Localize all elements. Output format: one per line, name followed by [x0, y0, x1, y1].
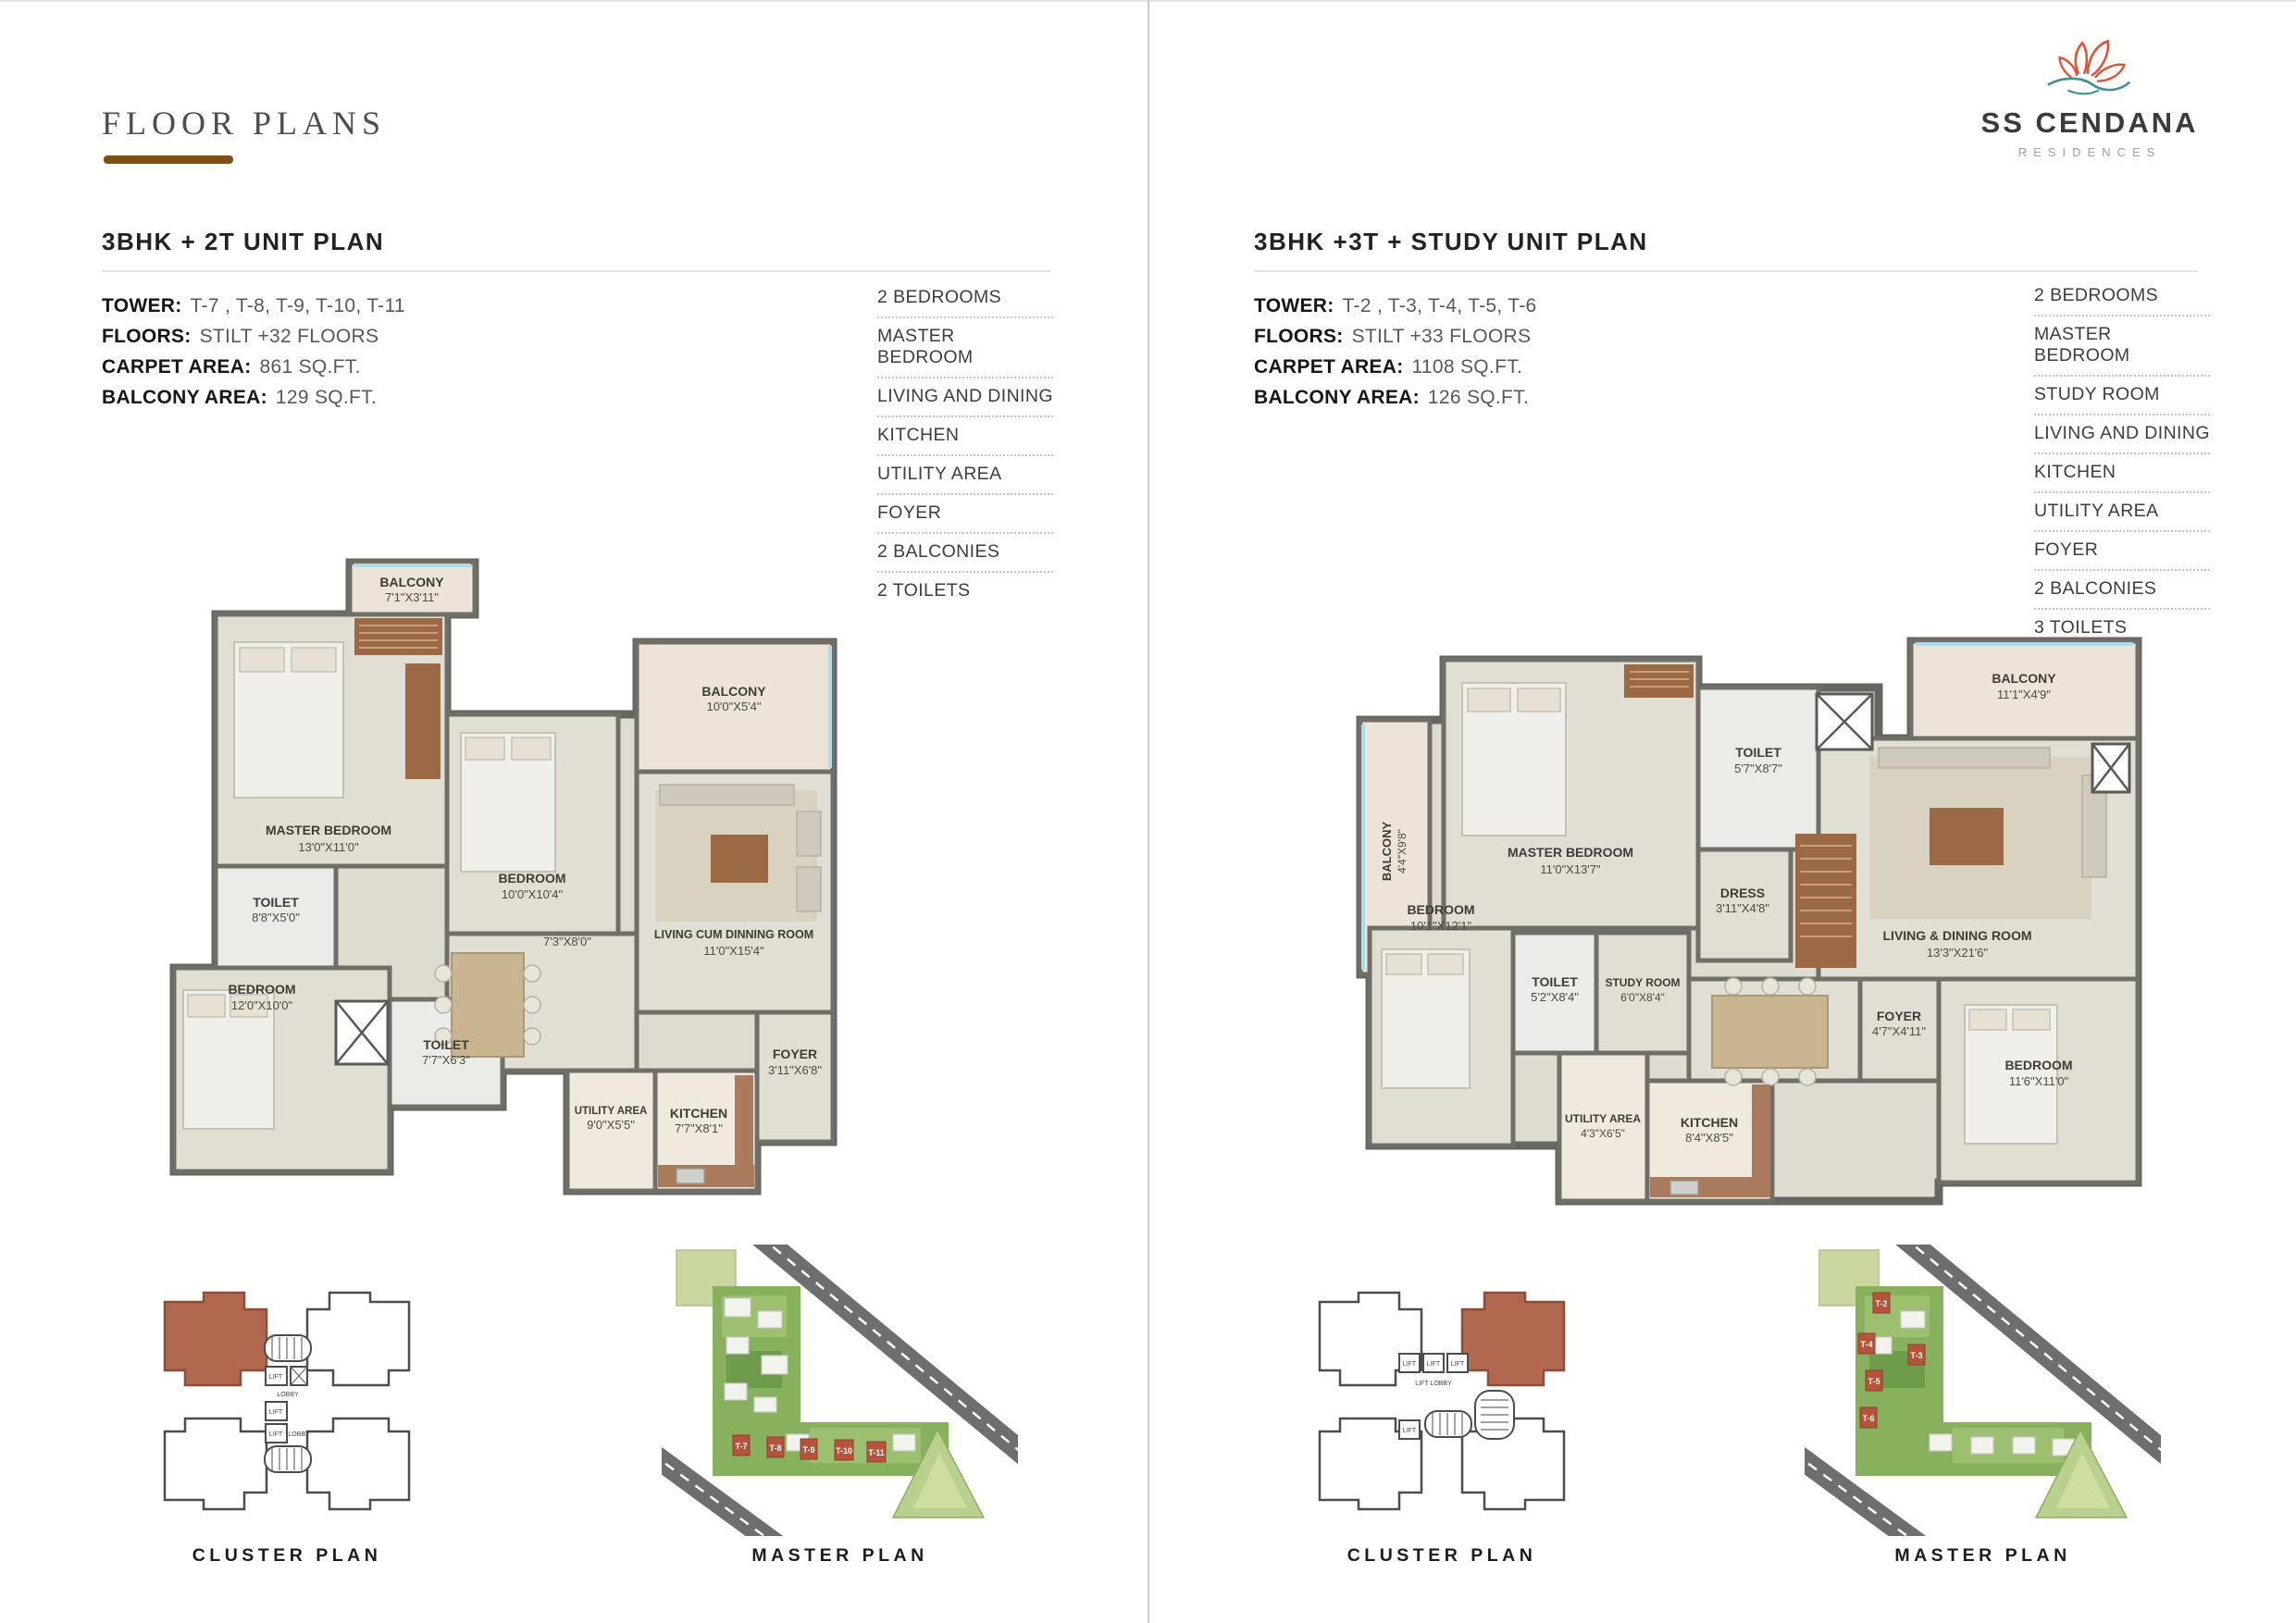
spec-row-balcony-area: BALCONY AREA:126 SQ.FT.	[1254, 382, 1536, 413]
svg-text:FOYER: FOYER	[1877, 1009, 1921, 1023]
spec-label: CARPET AREA:	[1254, 356, 1404, 378]
svg-text:12'0"X10'0": 12'0"X10'0"	[231, 998, 293, 1012]
spec-label: TOWER:	[1254, 295, 1334, 316]
cluster-unit	[165, 1419, 267, 1509]
brand-name: SS CENDANA	[1942, 106, 2238, 140]
spec-label: FLOORS:	[102, 326, 192, 347]
master-caption: MASTER PLAN	[662, 1545, 1018, 1567]
feature-item: 2 BEDROOMS	[2034, 278, 2210, 316]
spec-value: 126 SQ.FT.	[1428, 387, 1529, 408]
cluster-core: LIFT LOBBY LIFT LIFT LOBBY	[265, 1335, 311, 1472]
feature-item: FOYER	[877, 495, 1053, 534]
feature-item: KITCHEN	[877, 417, 1053, 456]
svg-text:4'4"X9'8": 4'4"X9'8"	[1396, 829, 1409, 873]
svg-text:10'0"X5'4": 10'0"X5'4"	[706, 700, 761, 713]
svg-text:T-5: T-5	[1868, 1377, 1880, 1386]
brand-logo: SS CENDANA RESIDENCES	[1942, 37, 2238, 159]
svg-text:T-10: T-10	[836, 1446, 852, 1456]
spec-value: 861 SQ.FT.	[260, 356, 361, 378]
spec-row-floors: FLOORS:STILT +33 FLOORS	[1254, 321, 1536, 352]
title-rule	[1254, 270, 2198, 272]
spec-value: 1108 SQ.FT.	[1412, 356, 1523, 378]
spec-row-floors: FLOORS:STILT +32 FLOORS	[102, 321, 405, 352]
spec-value: 129 SQ.FT.	[276, 387, 377, 408]
kitchen-counter	[658, 1165, 754, 1187]
svg-text:LIFT LOBBY: LIFT LOBBY	[1415, 1381, 1452, 1387]
svg-text:7'7"X8'1": 7'7"X8'1"	[675, 1121, 723, 1135]
svg-text:LIVING & DINING ROOM: LIVING & DINING ROOM	[1883, 928, 2032, 943]
svg-text:BEDROOM: BEDROOM	[498, 871, 565, 886]
svg-text:LIFT: LIFT	[269, 1431, 283, 1438]
svg-text:LIFT: LIFT	[269, 1374, 283, 1381]
kitchen-counter	[1650, 1177, 1770, 1197]
svg-text:LIFT: LIFT	[1403, 1428, 1417, 1434]
svg-text:13'3"X21'6": 13'3"X21'6"	[1927, 946, 1989, 960]
svg-text:LIVING CUM DINNING ROOM: LIVING CUM DINNING ROOM	[654, 928, 813, 941]
svg-text:TOILET: TOILET	[1532, 974, 1578, 989]
stairs	[1795, 834, 1856, 968]
svg-text:7'3"X8'0": 7'3"X8'0"	[543, 935, 591, 948]
feature-item: 2 BALCONIES	[877, 534, 1053, 573]
svg-text:BALCONY: BALCONY	[379, 575, 444, 589]
svg-text:LIFT: LIFT	[1451, 1361, 1465, 1368]
svg-text:BALCONY: BALCONY	[701, 684, 766, 699]
spec-row-carpet-area: CARPET AREA:861 SQ.FT.	[102, 352, 405, 382]
spec-row-carpet-area: CARPET AREA:1108 SQ.FT.	[1254, 352, 1536, 382]
svg-text:T-9: T-9	[802, 1445, 814, 1455]
svg-text:T-8: T-8	[769, 1443, 781, 1453]
cluster-unit-highlighted	[165, 1293, 267, 1385]
dining-table	[1712, 996, 1828, 1068]
svg-text:9'0"X5'5": 9'0"X5'5"	[587, 1118, 635, 1132]
spec-value: T-2 , T-3, T-4, T-5, T-6	[1343, 295, 1537, 316]
feature-item: LIVING AND DINING	[877, 378, 1053, 417]
page-title: FLOOR PLANS	[102, 104, 386, 142]
svg-text:TOILET: TOILET	[253, 895, 299, 910]
svg-text:10'1"X12'1": 10'1"X12'1"	[1410, 919, 1472, 933]
spec-row-tower: TOWER:T-2 , T-3, T-4, T-5, T-6	[1254, 291, 1536, 321]
cluster-unit	[307, 1419, 409, 1509]
feature-list: 2 BEDROOMS MASTER BEDROOM LIVING AND DIN…	[877, 279, 1053, 610]
svg-text:BALCONY: BALCONY	[1992, 671, 2056, 686]
title-accent-underline	[104, 155, 233, 164]
svg-text:7'1"X3'11": 7'1"X3'11"	[385, 590, 439, 604]
spec-row-balcony-area: BALCONY AREA:129 SQ.FT.	[102, 382, 405, 413]
cluster-caption: CLUSTER PLAN	[148, 1545, 426, 1567]
spec-row-tower: TOWER:T-7 , T-8, T-9, T-10, T-11	[102, 291, 405, 321]
svg-text:T-6: T-6	[1862, 1414, 1874, 1423]
master-caption: MASTER PLAN	[1805, 1545, 2161, 1567]
feature-item: KITCHEN	[2034, 454, 2210, 493]
cluster-plan-3bhk-2t: LIFT LOBBY LIFT LIFT LOBBY	[148, 1282, 426, 1522]
svg-text:LOBBY: LOBBY	[288, 1431, 310, 1438]
svg-text:11'0"X15'4": 11'0"X15'4"	[703, 944, 764, 958]
master-plan-3bhk-3t-study: T-2 T-4 T-3 T-5 T-6	[1805, 1245, 2161, 1536]
svg-text:LOBBY: LOBBY	[277, 1392, 299, 1398]
svg-text:FOYER: FOYER	[773, 1047, 817, 1061]
svg-text:T-4: T-4	[1860, 1340, 1872, 1349]
spec-label: FLOORS:	[1254, 326, 1344, 347]
svg-text:7'7"X6'3": 7'7"X6'3"	[422, 1053, 470, 1067]
spec-label: TOWER:	[102, 295, 182, 316]
svg-text:TOILET: TOILET	[1735, 745, 1781, 760]
room-foyer	[757, 1012, 833, 1142]
feature-item: 2 BALCONIES	[2034, 571, 2210, 610]
cluster-unit-highlighted	[1462, 1293, 1564, 1385]
spec-label: BALCONY AREA:	[102, 387, 267, 408]
spec-block: TOWER:T-2 , T-3, T-4, T-5, T-6 FLOORS:ST…	[1254, 291, 1536, 413]
svg-text:11'0"X13'7": 11'0"X13'7"	[1540, 862, 1601, 876]
floorplan-3bhk-3t-study: BALCONY 4'4"X9'8" MASTER BEDROOM 11'0"X1…	[1347, 609, 2161, 1247]
svg-text:4'7"X4'11": 4'7"X4'11"	[1872, 1024, 1926, 1038]
feature-item: 2 BEDROOMS	[877, 279, 1053, 318]
svg-text:3'11"X6'8": 3'11"X6'8"	[768, 1063, 822, 1077]
svg-text:6'0"X8'4": 6'0"X8'4"	[1620, 991, 1665, 1004]
svg-text:10'0"X10'4": 10'0"X10'4"	[502, 887, 564, 901]
sink	[676, 1169, 704, 1183]
spec-value: STILT +33 FLOORS	[1352, 326, 1532, 347]
svg-text:UTILITY AREA: UTILITY AREA	[575, 1106, 648, 1117]
feature-item: MASTER BEDROOM	[2034, 316, 2210, 377]
cluster-plan-3bhk-3t-study: LIFT LIFT LIFT LIFT LOBBY LIFT	[1303, 1282, 1581, 1522]
svg-text:TOILET: TOILET	[423, 1037, 469, 1052]
panel-divider	[1148, 0, 1149, 1623]
svg-text:T-7: T-7	[735, 1442, 747, 1451]
svg-text:4'3"X6'5": 4'3"X6'5"	[1581, 1127, 1625, 1140]
master-plan-3bhk-2t: T-7 T-8 T-9 T-10 T-11	[662, 1245, 1018, 1536]
cluster-unit	[307, 1293, 409, 1385]
feature-list: 2 BEDROOMS MASTER BEDROOM STUDY ROOM LIV…	[2034, 278, 2210, 647]
cluster-caption: CLUSTER PLAN	[1303, 1545, 1581, 1567]
lotus-icon	[2035, 37, 2144, 98]
feature-item: FOYER	[2034, 532, 2210, 571]
svg-text:KITCHEN: KITCHEN	[670, 1106, 727, 1121]
svg-text:11'6"X11'0": 11'6"X11'0"	[2009, 1074, 2069, 1088]
sink	[1670, 1181, 1698, 1195]
svg-text:LIFT: LIFT	[1427, 1361, 1441, 1368]
svg-text:3'11"X4'8": 3'11"X4'8"	[1716, 901, 1769, 915]
title-rule	[102, 270, 1050, 272]
unit-title: 3BHK +3T + STUDY UNIT PLAN	[1254, 228, 1648, 256]
spec-value: STILT +32 FLOORS	[200, 326, 379, 347]
landscape	[722, 1295, 984, 1518]
coffee-table	[711, 835, 768, 883]
svg-text:5'7"X8'7": 5'7"X8'7"	[1734, 762, 1782, 775]
svg-text:MASTER BEDROOM: MASTER BEDROOM	[1508, 845, 1633, 860]
svg-text:DRESS: DRESS	[1720, 886, 1765, 900]
svg-text:BALCONY: BALCONY	[1380, 822, 1394, 882]
svg-text:UTILITY AREA: UTILITY AREA	[1565, 1112, 1641, 1125]
spec-label: BALCONY AREA:	[1254, 387, 1420, 408]
feature-item: UTILITY AREA	[877, 456, 1053, 495]
svg-text:13'0"X11'0": 13'0"X11'0"	[298, 840, 359, 854]
svg-text:11'1"X4'9": 11'1"X4'9"	[1997, 688, 2051, 701]
svg-text:T-3: T-3	[1910, 1351, 1922, 1360]
feature-item: STUDY ROOM	[2034, 377, 2210, 415]
unit-title: 3BHK + 2T UNIT PLAN	[102, 228, 384, 256]
feature-item: 2 TOILETS	[877, 573, 1053, 610]
feature-item: UTILITY AREA	[2034, 493, 2210, 532]
brand-tagline: RESIDENCES	[1942, 145, 2238, 159]
svg-text:BEDROOM: BEDROOM	[228, 982, 295, 997]
svg-text:STUDY ROOM: STUDY ROOM	[1605, 976, 1680, 989]
svg-text:8'8"X5'0": 8'8"X5'0"	[252, 911, 300, 924]
svg-text:LIFT: LIFT	[269, 1409, 283, 1416]
svg-text:T-11: T-11	[868, 1448, 885, 1457]
svg-text:5'2"X8'4": 5'2"X8'4"	[1531, 990, 1579, 1004]
spec-block: TOWER:T-7 , T-8, T-9, T-10, T-11 FLOORS:…	[102, 291, 405, 413]
svg-text:MASTER BEDROOM: MASTER BEDROOM	[266, 823, 391, 837]
feature-item: MASTER BEDROOM	[877, 318, 1053, 378]
svg-text:8'4"X8'5": 8'4"X8'5"	[1685, 1131, 1733, 1145]
svg-text:KITCHEN: KITCHEN	[1681, 1115, 1738, 1130]
spec-label: CARPET AREA:	[102, 356, 252, 378]
feature-item: LIVING AND DINING	[2034, 415, 2210, 454]
svg-text:LIFT: LIFT	[1403, 1361, 1417, 1368]
svg-text:T-2: T-2	[1875, 1299, 1887, 1308]
floorplan-3bhk-2t: BALCONY 7'1"X3'11" MASTER BEDROOM 13'0"X…	[169, 557, 845, 1196]
coffee-table	[1930, 808, 2004, 865]
spec-value: T-7 , T-8, T-9, T-10, T-11	[191, 295, 405, 316]
svg-text:BEDROOM: BEDROOM	[1407, 902, 1474, 917]
svg-text:BEDROOM: BEDROOM	[2004, 1058, 2072, 1072]
